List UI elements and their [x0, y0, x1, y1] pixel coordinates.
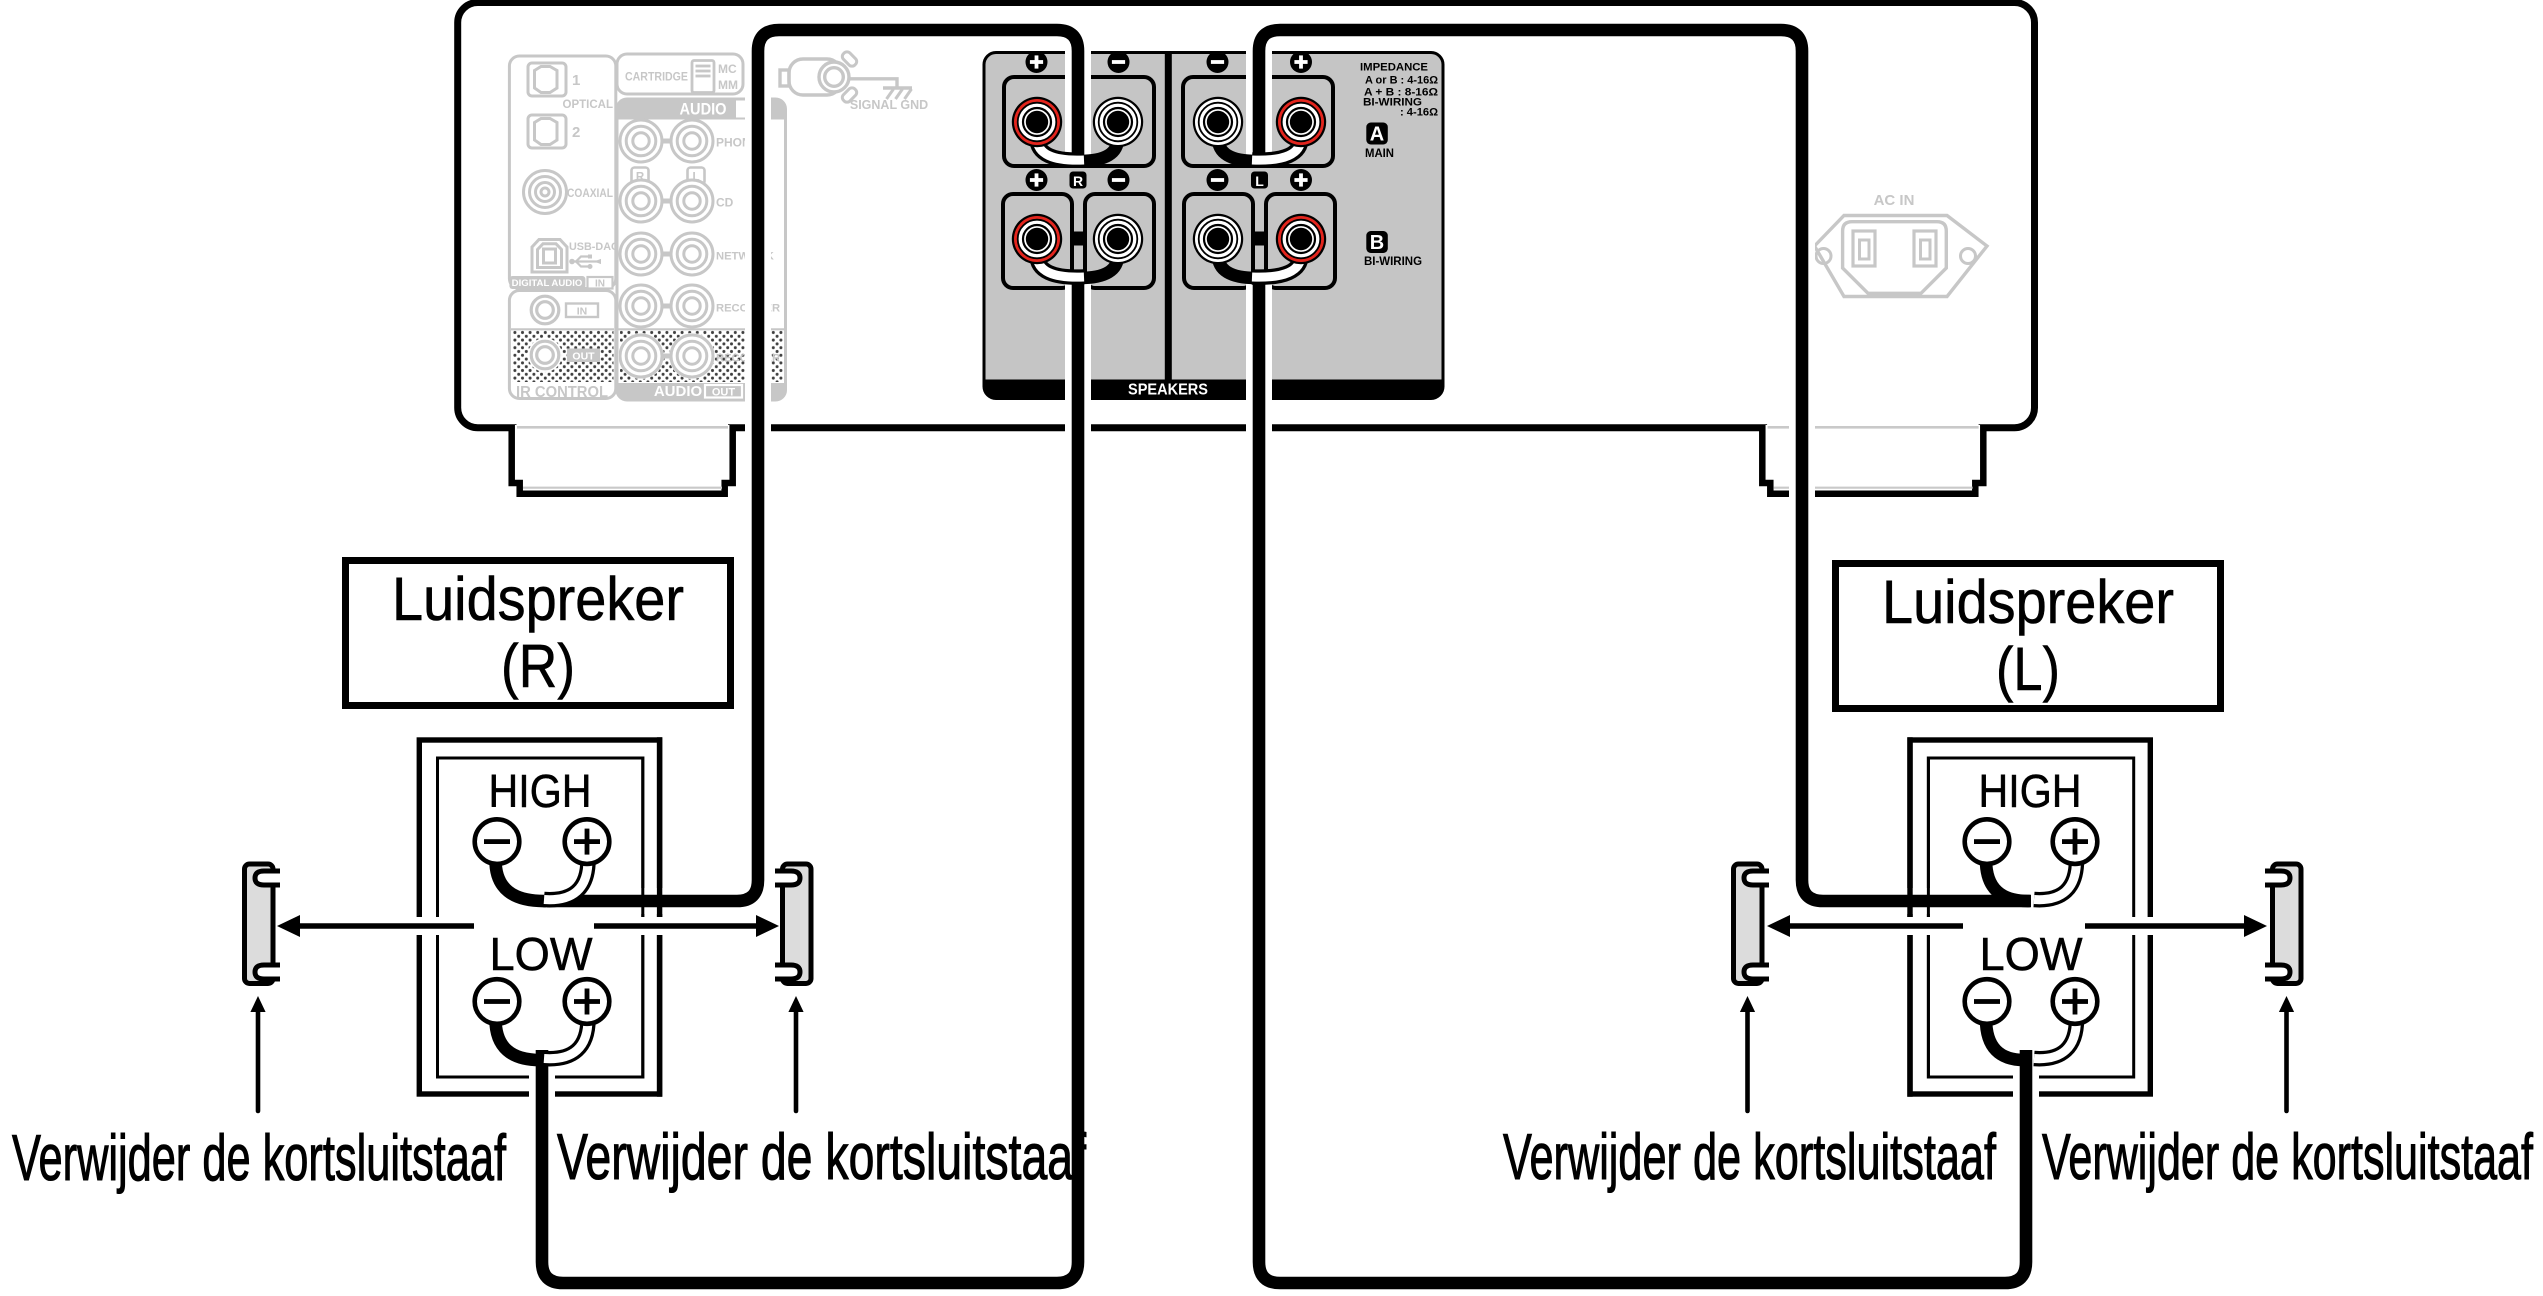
svg-text:USB-DAC: USB-DAC	[569, 241, 619, 253]
svg-text:HIGH: HIGH	[1979, 765, 2082, 817]
svg-text:MC: MC	[718, 62, 737, 76]
svg-text:LOW: LOW	[490, 928, 594, 980]
svg-text:MM: MM	[718, 78, 738, 92]
svg-text:: 4-16Ω: : 4-16Ω	[1400, 107, 1438, 119]
svg-text:OUT: OUT	[572, 351, 595, 363]
svg-text:CARTRIDGE: CARTRIDGE	[625, 71, 688, 84]
svg-text:R: R	[1073, 173, 1083, 189]
svg-text:SIGNAL GND: SIGNAL GND	[850, 98, 928, 112]
svg-text:1: 1	[572, 72, 580, 89]
svg-text:L: L	[1255, 173, 1264, 189]
svg-text:A or B : 4-16Ω: A or B : 4-16Ω	[1365, 75, 1438, 87]
svg-text:B: B	[1370, 232, 1384, 254]
svg-text:SPEAKERS: SPEAKERS	[1128, 382, 1208, 399]
svg-text:AUDIO: AUDIO	[680, 101, 727, 119]
svg-text:(R): (R)	[501, 632, 575, 700]
svg-text:CD: CD	[716, 196, 734, 210]
svg-text:BI-WIRING: BI-WIRING	[1364, 256, 1422, 268]
svg-text:DIGITAL AUDIO: DIGITAL AUDIO	[512, 278, 583, 289]
svg-text:IN: IN	[595, 279, 605, 290]
svg-text:Verwijder de kortsluitstaaf: Verwijder de kortsluitstaaf	[12, 1122, 507, 1194]
svg-text:COAXIAL: COAXIAL	[567, 188, 613, 200]
svg-text:IMPEDANCE: IMPEDANCE	[1360, 62, 1428, 74]
svg-text:LOW: LOW	[1980, 928, 2084, 980]
svg-text:Verwijder de kortsluitstaaf: Verwijder de kortsluitstaaf	[2042, 1121, 2534, 1193]
svg-text:MAIN: MAIN	[1365, 148, 1394, 160]
svg-text:(L): (L)	[1996, 635, 2060, 703]
svg-text:OUT: OUT	[712, 387, 736, 399]
svg-text:2: 2	[572, 124, 580, 141]
svg-text:Verwijder de kortsluitstaaf: Verwijder de kortsluitstaaf	[1503, 1121, 1997, 1193]
svg-text:OPTICAL: OPTICAL	[563, 99, 613, 111]
svg-text:Luidspreker: Luidspreker	[392, 565, 684, 633]
svg-text:AUDIO: AUDIO	[654, 383, 703, 400]
svg-text:Verwijder de kortsluitstaaf: Verwijder de kortsluitstaaf	[557, 1121, 1087, 1193]
svg-text:Luidspreker: Luidspreker	[1882, 568, 2174, 636]
svg-text:A: A	[1370, 124, 1384, 146]
svg-text:HIGH: HIGH	[489, 765, 592, 817]
svg-text:IN: IN	[577, 306, 588, 318]
svg-text:AC IN: AC IN	[1874, 192, 1915, 209]
svg-text:IR CONTROL: IR CONTROL	[516, 384, 608, 401]
